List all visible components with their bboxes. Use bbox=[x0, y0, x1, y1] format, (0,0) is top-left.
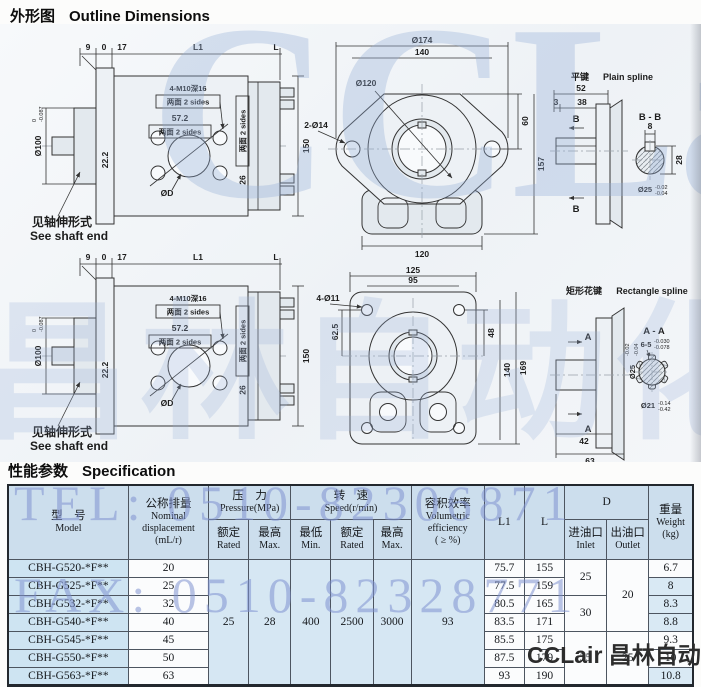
model-cell: CBH-G525-*F** bbox=[8, 577, 128, 595]
model-cell: CBH-G563-*F** bbox=[8, 667, 128, 685]
shaft-note-en: See shaft end bbox=[30, 439, 108, 453]
plain-spline-title-en: Plain spline bbox=[603, 72, 653, 82]
col-header-displacement: 公称排量 Nominal displacement (mL/r) bbox=[128, 485, 208, 559]
weight-cell: 8.8 bbox=[649, 613, 693, 631]
pressure-max-cell: 28 bbox=[249, 559, 291, 685]
plain-spline-title-zh: 平键 bbox=[571, 71, 590, 82]
displacement-cell: 32 bbox=[128, 595, 208, 613]
rated-en: Rated bbox=[209, 540, 248, 552]
col-header-l1: L1 bbox=[484, 485, 524, 559]
l1-cell: 80.5 bbox=[484, 595, 524, 613]
displacement-cell: 45 bbox=[128, 631, 208, 649]
l1-label: L1 bbox=[485, 515, 524, 529]
title-zh: 性能参数 bbox=[8, 463, 68, 480]
dim-dia120: Ø120 bbox=[356, 78, 377, 88]
dim-57-2: 57.2 bbox=[172, 113, 189, 123]
dim-140: 140 bbox=[415, 47, 429, 57]
dim-22-2: 22.2 bbox=[100, 151, 110, 168]
max-zh: 最高 bbox=[374, 526, 411, 540]
subheader-speed-max: 最高Max. bbox=[373, 519, 411, 559]
dim-17: 17 bbox=[117, 42, 127, 52]
label-diaD: ØD bbox=[161, 188, 174, 198]
spline-profile bbox=[634, 352, 670, 392]
dim-150: 150 bbox=[301, 349, 311, 363]
vol-en1: Volumetric bbox=[412, 511, 484, 523]
section-arrow-a-top: A bbox=[585, 332, 592, 343]
subheader-pressure-rated: 额定Rated bbox=[209, 519, 249, 559]
dim-95: 95 bbox=[408, 275, 418, 285]
rect-flange-front-view: 125 95 4-Ø11 62.5 bbox=[316, 265, 528, 444]
outline-drawings-panel: CCLair 昌林自动化 9 0 17 L1 bbox=[0, 24, 701, 462]
label-2sides-vertical: 两面 2 sides bbox=[239, 110, 248, 153]
dim-3: 3 bbox=[554, 97, 559, 107]
weight-cell: 8.3 bbox=[649, 595, 693, 613]
subheader-inlet: 进油口Inlet bbox=[565, 519, 607, 559]
title-en: Outline Dimensions bbox=[69, 8, 210, 25]
col-header-weight: 重量 Weight (kg) bbox=[649, 485, 693, 559]
dia25-spline-tol-top: -0.02 bbox=[625, 343, 631, 356]
dim-0: 0 bbox=[102, 42, 107, 52]
dim-157: 157 bbox=[536, 157, 546, 171]
dim-120: 120 bbox=[415, 249, 429, 259]
model-cell: CBH-G532-*F** bbox=[8, 595, 128, 613]
catalog-page: 外形图Outline Dimensions CCLair 昌林自动化 9 bbox=[0, 0, 701, 687]
vol-zh: 容积效率 bbox=[412, 497, 484, 511]
section-a-a-label: A - A bbox=[643, 326, 665, 337]
l-cell: 171 bbox=[524, 613, 564, 631]
dim-169: 169 bbox=[518, 361, 528, 375]
l1-cell: 83.5 bbox=[484, 613, 524, 631]
l-cell: 155 bbox=[524, 559, 564, 577]
label-4-dia11-holes: 4-Ø11 bbox=[316, 293, 339, 303]
l-cell: 165 bbox=[524, 595, 564, 613]
l1-cell: 87.5 bbox=[484, 649, 524, 667]
max-zh: 最高 bbox=[249, 526, 290, 540]
dim-52: 52 bbox=[576, 83, 586, 93]
dim-62-5: 62.5 bbox=[330, 323, 340, 340]
dim-38: 38 bbox=[577, 97, 587, 107]
weight-zh: 重量 bbox=[649, 503, 692, 517]
dia100-tol-top: 0 bbox=[32, 119, 38, 122]
dia100-tol-bot: -0.087 bbox=[39, 106, 45, 122]
dia100-tol-top: 0 bbox=[32, 329, 38, 332]
dim-48: 48 bbox=[486, 328, 496, 338]
col-header-volumetric-efficiency: 容积效率 Volumetric efficiency ( ≥ %) bbox=[411, 485, 484, 559]
dim-26: 26 bbox=[238, 175, 248, 185]
section-arrow-a-bottom: A bbox=[585, 424, 592, 435]
pressure-zh: 压 力 bbox=[209, 489, 290, 503]
dim-dia100: Ø100 bbox=[33, 135, 43, 156]
d-label: D bbox=[565, 495, 648, 509]
dim-8-key: 8 bbox=[648, 121, 653, 131]
dim-dia21: Ø21 bbox=[641, 401, 655, 410]
col-header-d: D bbox=[565, 485, 649, 519]
outlet-en: Outlet bbox=[607, 540, 648, 552]
outlet-zh: 出油口 bbox=[607, 526, 648, 540]
l1-cell: 77.5 bbox=[484, 577, 524, 595]
rated-en: Rated bbox=[331, 540, 372, 552]
title-zh: 外形图 bbox=[10, 8, 55, 25]
speed-min-cell: 400 bbox=[291, 559, 331, 685]
disp-en2: displacement bbox=[129, 523, 208, 535]
dim-L1: L1 bbox=[193, 252, 203, 262]
dia25-spline-tol-bot: -0.04 bbox=[634, 343, 640, 356]
col-header-l: L bbox=[524, 485, 564, 559]
dim-26: 26 bbox=[238, 385, 248, 395]
spline-count: 6-5 bbox=[641, 340, 652, 349]
weight-cell: 8 bbox=[649, 577, 693, 595]
speed-max-cell: 3000 bbox=[373, 559, 411, 685]
l1-cell: 93 bbox=[484, 667, 524, 685]
title-en: Specification bbox=[82, 463, 175, 480]
displacement-cell: 20 bbox=[128, 559, 208, 577]
dim-L: L bbox=[273, 252, 278, 262]
label-2sides-b: 两面 2 sides bbox=[159, 128, 202, 137]
label-m10-holes: 4-M10深16 bbox=[169, 293, 206, 303]
model-cell: CBH-G550-*F** bbox=[8, 649, 128, 667]
model-cell: CBH-G545-*F** bbox=[8, 631, 128, 649]
dim-9: 9 bbox=[86, 252, 91, 262]
outline-dimensions-title: 外形图Outline Dimensions bbox=[10, 5, 224, 26]
col-header-model: 型 号 Model bbox=[8, 485, 128, 559]
dim-150: 150 bbox=[301, 139, 311, 153]
dim-17: 17 bbox=[117, 252, 127, 262]
subheader-outlet: 出油口Outlet bbox=[607, 519, 649, 559]
dia25-tol-bot: -0.04 bbox=[655, 191, 668, 197]
specification-title: 性能参数Specification bbox=[8, 460, 189, 481]
label-2sides-a: 两面 2 sides bbox=[167, 308, 210, 317]
label-2sides-vertical: 两面 2 sides bbox=[239, 320, 248, 363]
subheader-pressure-max: 最高Max. bbox=[249, 519, 291, 559]
displacement-cell: 63 bbox=[128, 667, 208, 685]
dim-60: 60 bbox=[520, 116, 530, 126]
dim-57-2: 57.2 bbox=[172, 323, 189, 333]
shaft-note-en: See shaft end bbox=[30, 229, 108, 243]
model-cell: CBH-G520-*F** bbox=[8, 559, 128, 577]
rated-zh: 额定 bbox=[209, 526, 248, 540]
outlet-cell: 20 bbox=[607, 559, 649, 631]
weight-cell: 6.7 bbox=[649, 559, 693, 577]
spline-tol-bot: -0.078 bbox=[654, 345, 670, 351]
disp-zh: 公称排量 bbox=[129, 497, 208, 511]
weight-unit: (kg) bbox=[649, 529, 692, 541]
table-row: CBH-G520-*F** 20 25 28 400 2500 3000 93 … bbox=[8, 559, 693, 577]
dim-22-2: 22.2 bbox=[100, 361, 110, 378]
label-2-dia14-holes: 2-Ø14 bbox=[304, 120, 328, 130]
disp-en3: (mL/r) bbox=[129, 535, 208, 547]
shaft-note-zh: 见轴伸形式 bbox=[32, 214, 92, 229]
dim-dia25: Ø25 bbox=[638, 185, 652, 194]
vol-en2: efficiency bbox=[412, 523, 484, 535]
outline-drawings-svg: 9 0 17 L1 L 4-M10深16 两面 bbox=[0, 24, 701, 462]
subheader-speed-min: 最低Min. bbox=[291, 519, 331, 559]
l-cell: 159 bbox=[524, 577, 564, 595]
dim-125: 125 bbox=[406, 265, 420, 275]
dim-42: 42 bbox=[579, 436, 589, 446]
label-m10-holes: 4-M10深16 bbox=[169, 83, 206, 93]
max-en: Max. bbox=[249, 540, 290, 552]
round-flange-front-view: Ø174 140 2-Ø14 Ø120 bbox=[304, 35, 546, 259]
l-label: L bbox=[525, 515, 564, 529]
l1-cell: 85.5 bbox=[484, 631, 524, 649]
label-2sides-b: 两面 2 sides bbox=[159, 338, 202, 347]
col-header-pressure: 压 力 Pressure(MPa) bbox=[209, 485, 291, 519]
model-en: Model bbox=[9, 523, 128, 535]
label-2sides-a: 两面 2 sides bbox=[167, 98, 210, 107]
dim-dia25-spline: Ø25 bbox=[628, 365, 637, 379]
dim-63: 63 bbox=[585, 456, 595, 462]
pressure-en: Pressure(MPa) bbox=[209, 503, 290, 515]
model-cell: CBH-G540-*F** bbox=[8, 613, 128, 631]
min-en: Min. bbox=[291, 540, 330, 552]
dim-L: L bbox=[273, 42, 278, 52]
max-en: Max. bbox=[374, 540, 411, 552]
inlet-cell: 30 bbox=[565, 595, 607, 631]
dim-28: 28 bbox=[674, 155, 684, 165]
pump-side-view-bottom: 9 0 17 L1 L 4-M10深16 两面 bbox=[30, 252, 311, 453]
speed-zh: 转 速 bbox=[291, 489, 410, 503]
dia100-tol-bot: -0.087 bbox=[39, 316, 45, 332]
min-zh: 最低 bbox=[291, 526, 330, 540]
dim-dia174: Ø174 bbox=[412, 35, 433, 45]
displacement-cell: 50 bbox=[128, 649, 208, 667]
model-zh: 型 号 bbox=[9, 509, 128, 523]
rated-zh: 额定 bbox=[331, 526, 372, 540]
dim-0: 0 bbox=[102, 252, 107, 262]
vol-en3: ( ≥ %) bbox=[412, 535, 484, 547]
col-header-speed: 转 速 Speed(r/min) bbox=[291, 485, 411, 519]
pump-side-view-top: 9 0 17 L1 L 4-M10深16 两面 bbox=[30, 42, 311, 243]
scan-edge-shadow bbox=[690, 24, 701, 462]
speed-en: Speed(r/min) bbox=[291, 503, 410, 515]
dim-140: 140 bbox=[502, 363, 512, 377]
subheader-speed-rated: 额定Rated bbox=[331, 519, 373, 559]
rect-spline-title-zh: 矩形花键 bbox=[565, 285, 603, 296]
displacement-cell: 40 bbox=[128, 613, 208, 631]
rectangle-spline-detail: 矩形花键 Rectangle spline A A 42 63 A - A 6-… bbox=[550, 285, 688, 462]
displacement-cell: 25 bbox=[128, 577, 208, 595]
pressure-rated-cell: 25 bbox=[209, 559, 249, 685]
weight-en: Weight bbox=[649, 517, 692, 529]
header-row-groups: 型 号 Model 公称排量 Nominal displacement (mL/… bbox=[8, 485, 693, 519]
section-arrow-b-bottom: B bbox=[573, 204, 580, 215]
dim-dia100: Ø100 bbox=[33, 345, 43, 366]
disp-en1: Nominal bbox=[129, 511, 208, 523]
inlet-en: Inlet bbox=[565, 540, 606, 552]
speed-rated-cell: 2500 bbox=[331, 559, 373, 685]
plain-spline-detail: 平键 Plain spline 52 3 38 B B B - B bbox=[550, 71, 684, 228]
dia21-tol-bot: -0.42 bbox=[658, 407, 671, 413]
inlet-zh: 进油口 bbox=[565, 526, 606, 540]
label-diaD: ØD bbox=[161, 398, 174, 408]
volumetric-efficiency-cell: 93 bbox=[411, 559, 484, 685]
brand-footer: CCLair 昌林自动化 bbox=[527, 636, 701, 670]
inlet-cell: 25 bbox=[565, 559, 607, 595]
l1-cell: 75.7 bbox=[484, 559, 524, 577]
shaft-note-zh: 见轴伸形式 bbox=[32, 424, 92, 439]
rect-spline-title-en: Rectangle spline bbox=[616, 286, 688, 296]
dim-L1: L1 bbox=[193, 42, 203, 52]
section-arrow-b-top: B bbox=[573, 114, 580, 125]
dim-9: 9 bbox=[86, 42, 91, 52]
